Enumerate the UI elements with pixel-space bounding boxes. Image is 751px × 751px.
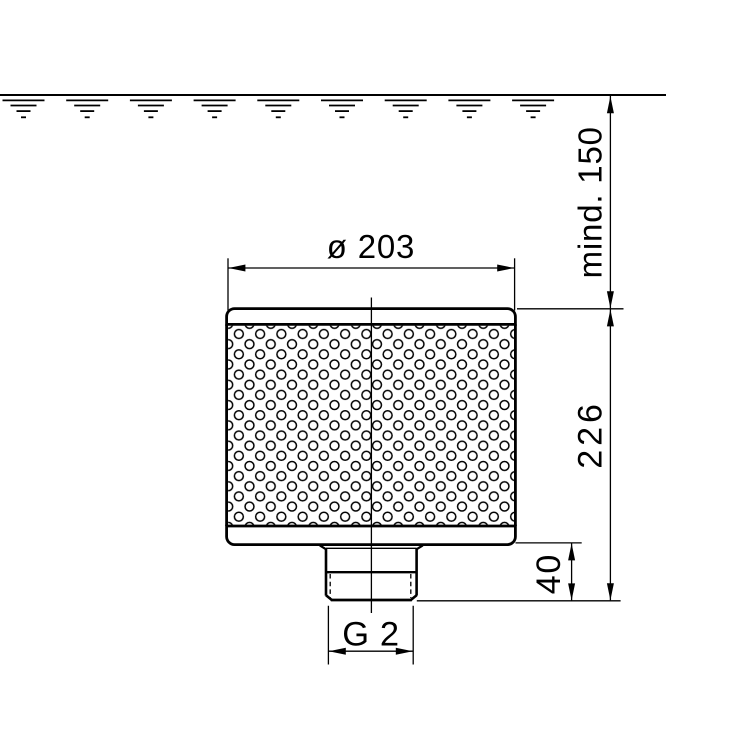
svg-text:mind. 150: mind. 150 [572,126,609,278]
svg-text:ø 203: ø 203 [327,228,415,265]
svg-text:40: 40 [530,553,568,594]
svg-text:G 2: G 2 [342,616,399,654]
svg-text:226: 226 [572,400,610,469]
